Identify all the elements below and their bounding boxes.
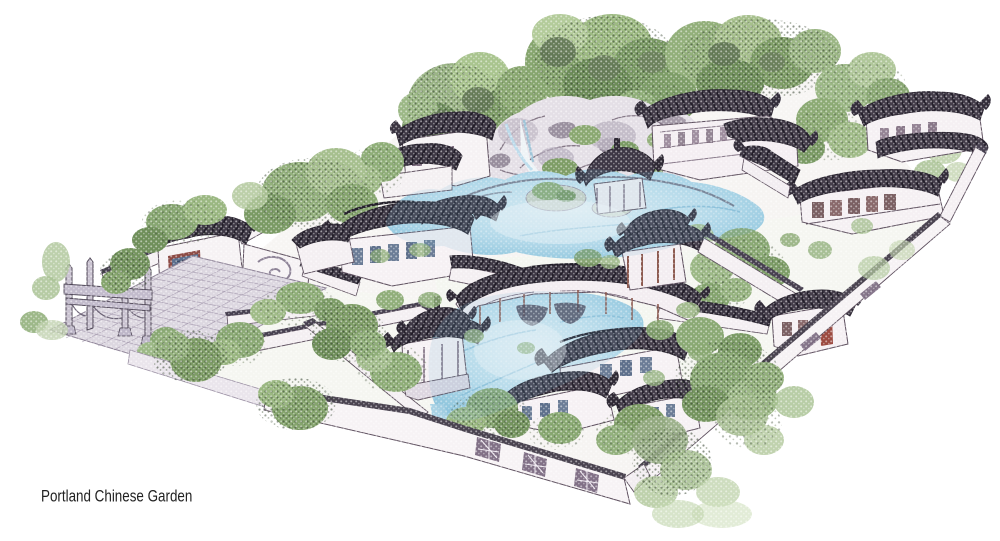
svg-text:Portland Chinese Garden: Portland Chinese Garden (41, 487, 192, 506)
